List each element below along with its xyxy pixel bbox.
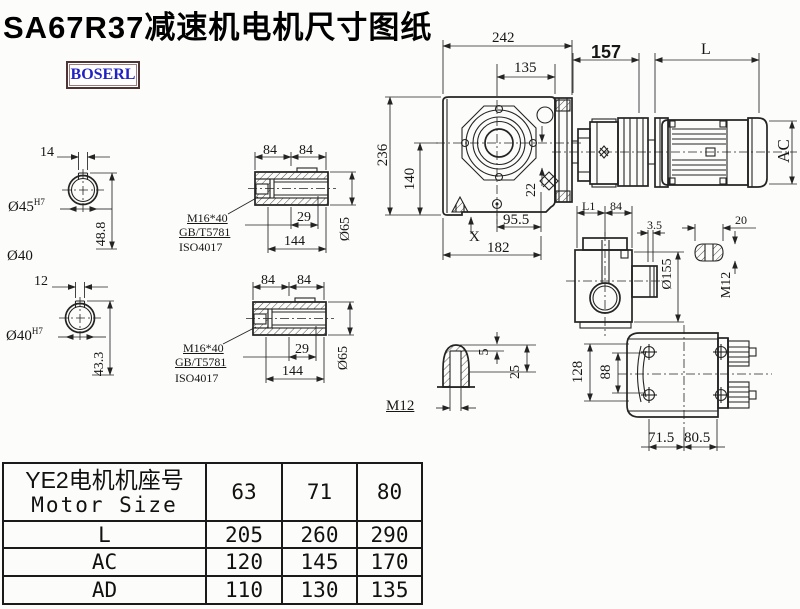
cell-AD-71: 130 bbox=[282, 576, 357, 604]
dim-tap-size-side: M12 bbox=[720, 255, 734, 315]
dim-center-to-right: 135 bbox=[514, 61, 537, 76]
gearmotor-side-view bbox=[552, 53, 797, 187]
dim-bushing-len-b: 84 bbox=[299, 144, 313, 158]
dim-bushing-len-a: 84 bbox=[263, 144, 277, 158]
dim-flange-dia: Ø155 bbox=[661, 244, 675, 304]
dim-bore-upper: Ø45H7 bbox=[8, 198, 45, 215]
dim-plug-offset: 22 bbox=[525, 160, 539, 220]
dim-key-width-upper: 14 bbox=[40, 146, 54, 160]
dim-overall-width: 242 bbox=[492, 31, 515, 46]
dim-bore-lower: Ø40H7 bbox=[6, 327, 43, 344]
table-row-AC: AC 120 145 170 bbox=[3, 548, 422, 576]
cell-L-80: 290 bbox=[357, 521, 422, 548]
dim-overall-height: 236 bbox=[376, 125, 390, 185]
dim-gearbox-length: 157 bbox=[584, 42, 628, 63]
row-label-AC: AC bbox=[3, 548, 206, 576]
dim-key-depth-lower: 43.3 bbox=[93, 334, 107, 394]
dim-total-length-lower: 144 bbox=[282, 365, 303, 379]
cell-L-71: 260 bbox=[282, 521, 357, 548]
spec-table: YE2电机机座号 Motor Size 63 71 80 L 205 260 2… bbox=[2, 462, 423, 605]
label-bolt-spec-upper: M16*40 bbox=[187, 212, 228, 224]
header-size-63: 63 bbox=[206, 463, 282, 521]
brand-logo-text: BOSERL bbox=[71, 66, 136, 84]
dim-base-width: 182 bbox=[487, 241, 510, 256]
cell-AC-80: 170 bbox=[357, 548, 422, 576]
label-bolt-spec-lower: M16*40 bbox=[183, 342, 224, 354]
dim-shaft-dia: Ø40 bbox=[7, 249, 33, 264]
dim-key-width-lower: 12 bbox=[34, 275, 48, 289]
row-label-L: L bbox=[3, 521, 206, 548]
header-size-80: 80 bbox=[357, 463, 422, 521]
page-title: SA67R37减速机电机尺寸图纸 bbox=[3, 2, 432, 47]
drawing-sheet: SA67R37减速机电机尺寸图纸 BOSERL 14 Ø45H7 48.8 Ø4… bbox=[0, 0, 800, 609]
dim-bushing-len-b2: 84 bbox=[297, 274, 311, 288]
dim-outer-dia-lower: Ø65 bbox=[337, 328, 351, 388]
label-standard1-lower: GB/T5781 bbox=[175, 356, 226, 368]
label-standard1-upper: GB/T5781 bbox=[179, 226, 230, 238]
dim-key-height: 5 bbox=[478, 322, 492, 382]
dim-housing-width: 128 bbox=[571, 342, 585, 402]
label-standard2-lower: ISO4017 bbox=[175, 372, 218, 384]
header-motor-size-cn: YE2电机机座号 bbox=[4, 467, 205, 493]
brand-logo: BOSERL bbox=[66, 61, 140, 89]
dim-outer-dia-upper: Ø65 bbox=[339, 199, 353, 259]
dim-foot-left: 71.5 bbox=[648, 431, 674, 446]
label-tap-size: M12 bbox=[386, 399, 414, 414]
label-x-mark: X bbox=[469, 230, 480, 245]
dim-thread-depth-upper: 29 bbox=[297, 211, 311, 225]
dim-motor-dia-label: AC bbox=[775, 121, 789, 181]
cell-AD-63: 110 bbox=[206, 576, 282, 604]
header-size-71: 71 bbox=[282, 463, 357, 521]
label-standard2-upper: ISO4017 bbox=[179, 241, 222, 253]
dim-key-depth-detail: 25 bbox=[509, 342, 523, 402]
dim-key-depth-upper: 48.8 bbox=[95, 204, 109, 264]
header-motor-size-en: Motor Size bbox=[4, 493, 205, 517]
cell-AC-71: 145 bbox=[282, 548, 357, 576]
header-motor-size: YE2电机机座号 Motor Size bbox=[3, 463, 206, 521]
dim-thread-depth-lower: 29 bbox=[295, 343, 309, 357]
dim-total-length-upper: 144 bbox=[284, 235, 305, 249]
row-label-AD: AD bbox=[3, 576, 206, 604]
dim-bore-span: 88 bbox=[599, 342, 613, 402]
cell-AD-80: 135 bbox=[357, 576, 422, 604]
dim-bushing-len-a2: 84 bbox=[261, 274, 275, 288]
dim-flange-thickness: 3.5 bbox=[647, 219, 662, 231]
dim-center-to-bottom: 140 bbox=[403, 149, 417, 209]
dim-bolt-to-center: 95.5 bbox=[503, 213, 529, 228]
table-row-L: L 205 260 290 bbox=[3, 521, 422, 548]
dim-l1: L1 bbox=[582, 200, 595, 212]
dim-foot-right: 80.5 bbox=[684, 431, 710, 446]
table-header-row: YE2电机机座号 Motor Size 63 71 80 bbox=[3, 463, 422, 521]
dim-motor-length-label: L bbox=[701, 42, 711, 58]
dim-hub-width: 84 bbox=[610, 200, 622, 212]
cell-AC-63: 120 bbox=[206, 548, 282, 576]
dim-key-width-section: 20 bbox=[735, 214, 747, 226]
table-row-AD: AD 110 130 135 bbox=[3, 576, 422, 604]
cell-L-63: 205 bbox=[206, 521, 282, 548]
